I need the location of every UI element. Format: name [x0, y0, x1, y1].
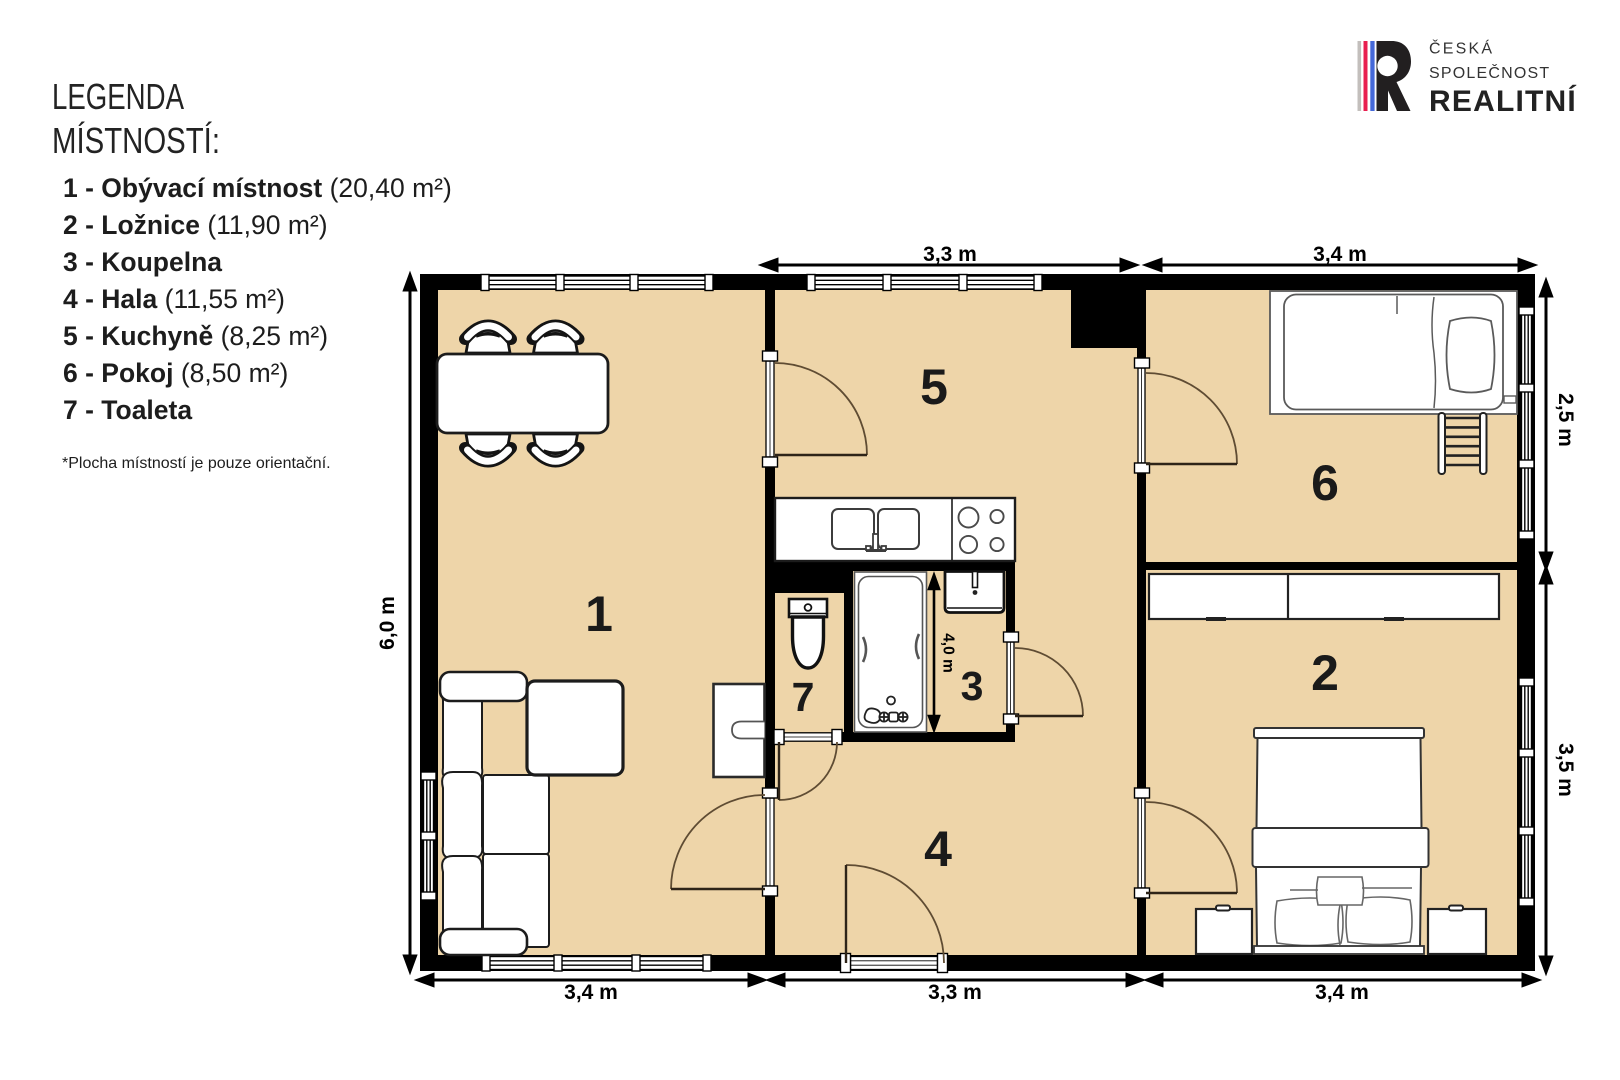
svg-text:MÍSTNOSTÍ:: MÍSTNOSTÍ:: [52, 120, 220, 161]
svg-text:1: 1: [585, 586, 613, 642]
svg-text:4 - Hala (11,55 m²): 4 - Hala (11,55 m²): [63, 284, 285, 314]
svg-text:3,4 m: 3,4 m: [1315, 981, 1369, 1004]
svg-text:5: 5: [920, 359, 948, 415]
svg-text:3,4 m: 3,4 m: [1313, 243, 1367, 266]
svg-text:3,3 m: 3,3 m: [923, 243, 977, 266]
svg-text:SPOLEČNOST: SPOLEČNOST: [1429, 63, 1550, 82]
svg-text:4,0 m: 4,0 m: [940, 633, 957, 673]
svg-text:*Plocha místností je pouze ori: *Plocha místností je pouze orientační.: [62, 455, 331, 472]
svg-text:3,3 m: 3,3 m: [928, 981, 982, 1004]
svg-text:2: 2: [1311, 645, 1339, 701]
svg-text:2,5 m: 2,5 m: [1554, 393, 1577, 447]
svg-text:5 - Kuchyně (8,25 m²): 5 - Kuchyně (8,25 m²): [63, 321, 328, 351]
svg-text:1 - Obývací místnost (20,40 m²: 1 - Obývací místnost (20,40 m²): [63, 173, 452, 203]
svg-text:6,0 m: 6,0 m: [376, 596, 399, 650]
svg-text:4: 4: [924, 821, 952, 877]
svg-text:6 - Pokoj (8,50 m²): 6 - Pokoj (8,50 m²): [63, 358, 288, 388]
svg-text:3 - Koupelna: 3 - Koupelna: [63, 247, 222, 277]
svg-text:3,4 m: 3,4 m: [564, 981, 618, 1004]
svg-text:7 - Toaleta: 7 - Toaleta: [63, 395, 192, 425]
svg-text:REALITNÍ: REALITNÍ: [1429, 84, 1577, 118]
svg-text:3: 3: [961, 663, 984, 709]
svg-text:6: 6: [1311, 455, 1339, 511]
svg-text:ČESKÁ: ČESKÁ: [1429, 39, 1494, 58]
svg-text:LEGENDA: LEGENDA: [52, 76, 184, 117]
svg-text:2 - Ložnice (11,90 m²): 2 - Ložnice (11,90 m²): [63, 210, 328, 240]
svg-text:3,5 m: 3,5 m: [1554, 743, 1577, 797]
svg-text:7: 7: [792, 674, 815, 720]
